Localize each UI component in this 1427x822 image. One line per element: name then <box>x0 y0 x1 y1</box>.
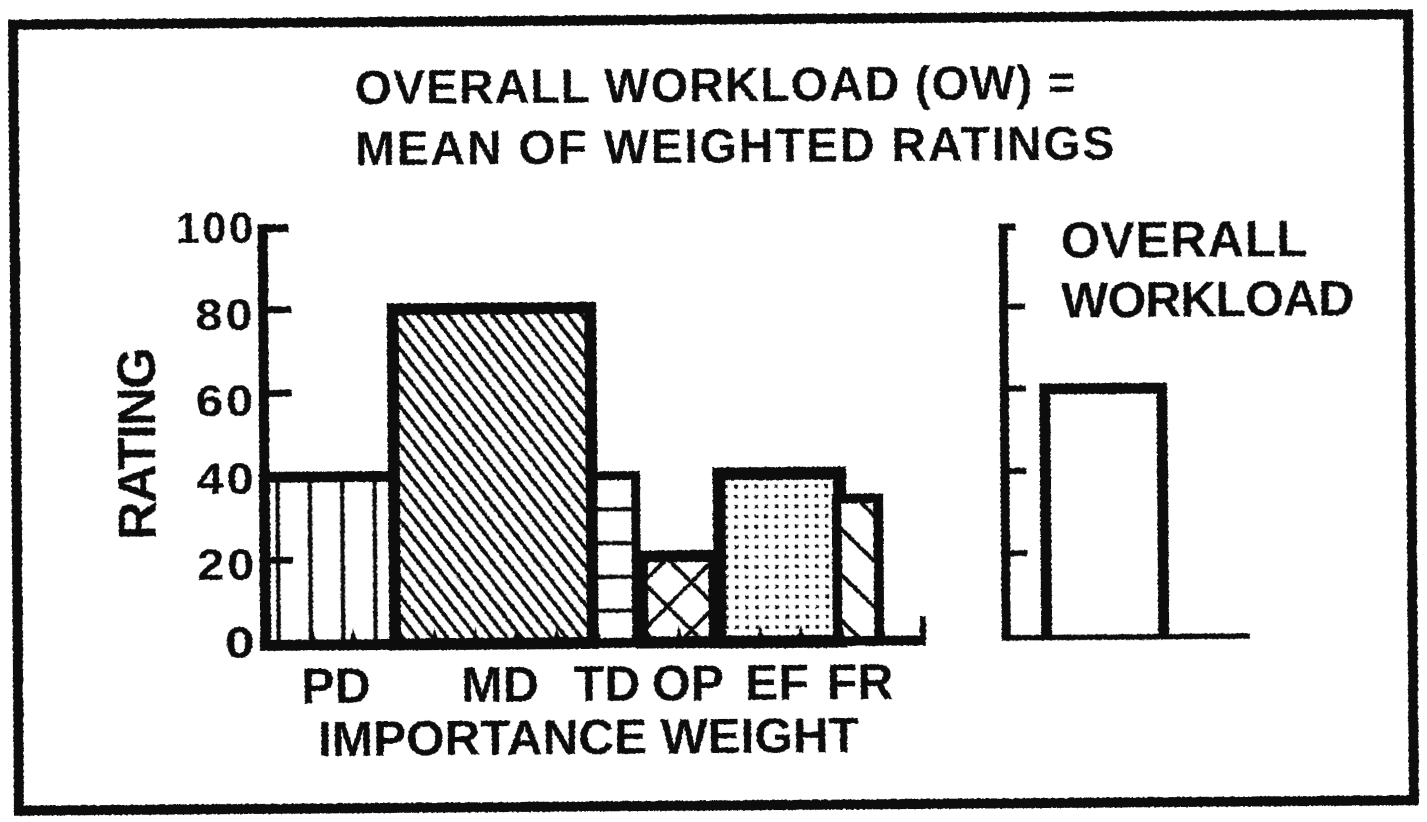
svg-text:OVERALL: OVERALL <box>1061 210 1309 269</box>
svg-text:80: 80 <box>195 290 255 339</box>
svg-text:0: 0 <box>225 618 258 667</box>
svg-text:PD: PD <box>301 658 371 715</box>
svg-text:20: 20 <box>197 540 257 589</box>
svg-text:MEAN OF WEIGHTED RATINGS: MEAN OF WEIGHTED RATINGS <box>355 117 1116 176</box>
svg-text:60: 60 <box>196 376 256 425</box>
svg-text:TD: TD <box>574 656 641 712</box>
svg-text:RATING: RATING <box>107 349 168 540</box>
svg-text:40: 40 <box>196 454 256 503</box>
svg-text:FR: FR <box>826 654 893 710</box>
svg-text:IMPORTANCE WEIGHT: IMPORTANCE WEIGHT <box>318 708 859 767</box>
svg-text:EF: EF <box>745 654 809 710</box>
svg-text:100: 100 <box>175 203 255 253</box>
svg-text:OVERALL WORKLOAD (OW) =: OVERALL WORKLOAD (OW) = <box>354 57 1076 115</box>
svg-text:MD: MD <box>461 656 539 713</box>
svg-text:WORKLOAD: WORKLOAD <box>1061 270 1353 328</box>
svg-text:OP: OP <box>652 655 725 712</box>
